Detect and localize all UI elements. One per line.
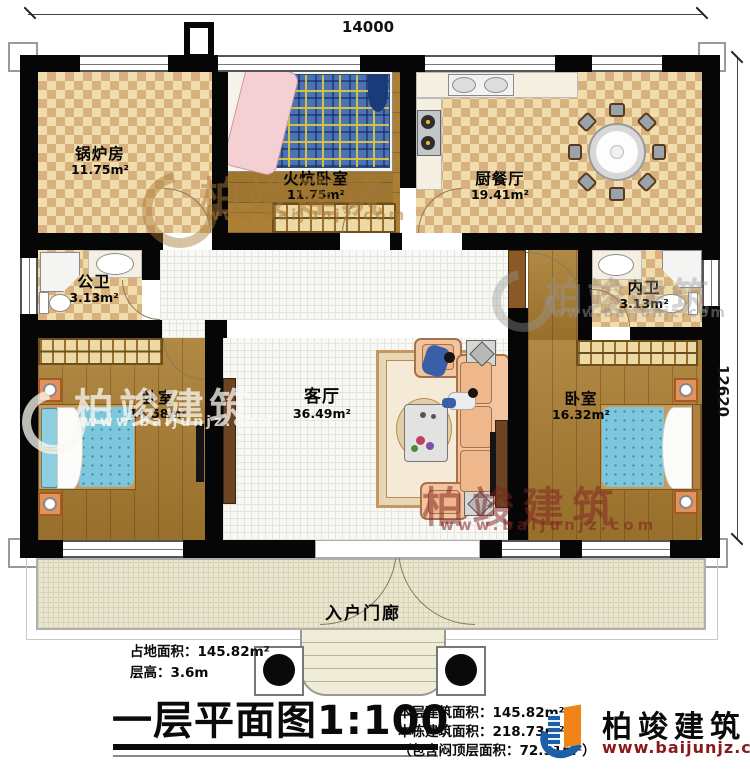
tv-living [490,432,496,496]
wall [462,233,702,250]
kang-bed-fold [368,74,388,112]
wall [578,250,592,327]
tv-cabinet [495,420,508,508]
toilet-tank [39,292,49,314]
wall [508,308,528,540]
nightstand-lamp [43,383,57,397]
wall [20,55,80,72]
room-area: 19.41m² [450,188,550,202]
dining-chair [652,144,666,160]
person-head [444,352,455,363]
stove-burner-dot [426,141,430,145]
bed-headboard [692,404,701,490]
bedroom-left-wardrobe [38,338,163,365]
plan-title-text: 一层平面图 [112,698,317,744]
bed-blanket [662,407,692,489]
dining-table-center [610,145,624,159]
brand-logo-icon [540,700,596,762]
window [20,258,38,314]
wall [630,327,702,340]
dimension-tick [24,7,37,20]
wall [20,72,38,258]
room-area: 16.32m² [533,408,629,422]
nightstand-lamp [679,495,693,509]
person-head [468,388,478,398]
room-area: 14.58m² [110,407,206,421]
room-name: 公卫 [56,274,132,291]
wall [662,55,720,72]
room-label-private-bath: 内卫 3.13m² [603,280,685,311]
wall [228,233,340,250]
dining-chair [609,103,625,117]
room-area: 11.75m² [256,188,376,202]
nightstand-lamp [679,383,693,397]
sofa-cushion [460,406,492,448]
bed-blanket [57,407,83,489]
dimension-width: 14000 [330,18,406,36]
wall [20,540,63,558]
room-name: 入户门廊 [318,605,408,624]
wall [183,540,315,558]
room-name: 卧室 [110,390,206,407]
wall [555,55,592,72]
room-name: 火炕卧室 [256,171,376,188]
room-name: 厨餐厅 [450,171,550,188]
entry-steps [300,630,446,696]
wall [560,540,582,558]
wall [142,250,160,280]
dimension-line-top [28,14,704,15]
floor-height: 层高：3.6m [130,663,270,684]
bed-pillow [41,408,58,448]
armchair-cushion [428,490,460,514]
living-room-floor [162,320,205,338]
wall [20,320,162,338]
coffee-table-flowers [426,442,434,450]
window [582,540,670,558]
room-name: 内卫 [603,280,685,297]
dimension-tick [696,7,709,20]
room-area: 3.13m² [56,291,132,305]
room-area: 11.75m² [52,163,148,177]
wall [20,314,38,540]
logo-tower-blue [548,714,560,746]
coffee-table-cup [431,414,436,419]
sink-basin [452,77,476,93]
wall [390,233,402,250]
bed-pillow [41,450,58,488]
toilet-tank [688,292,698,315]
person-legs [442,398,456,408]
window [425,55,555,72]
wall [702,72,720,260]
room-name: 锅炉房 [52,146,148,163]
room-label-public-bath: 公卫 3.13m² [56,274,132,305]
room-label-kang-bedroom: 火炕卧室 11.75m² [256,171,376,202]
coffee-table-cup [420,412,426,418]
dining-chair [609,187,625,201]
title-underline-thick [113,744,438,750]
room-label-living: 客厅 36.49m² [272,388,372,421]
window [218,55,360,72]
sofa-cushion [460,450,492,492]
wall [205,338,223,540]
info-left: 占地面积：145.82m² 层高：3.6m [130,642,270,684]
logo-tower-orange [564,705,581,748]
bedroom-right-door-leaf [508,250,526,310]
floor-plan-page: 锅炉房 11.75m² 火炕卧室 11.75m² 厨餐厅 19.41m² 公卫 … [0,0,750,773]
coffee-table [404,404,448,462]
tv-cabinet [223,378,236,504]
wall [578,327,592,340]
land-area: 占地面积：145.82m² [130,642,270,663]
bedroom-right-wardrobe [576,340,698,366]
logo-swoosh [534,712,589,765]
living-room-floor [160,250,508,320]
entry-door-opening [315,540,480,558]
room-name: 客厅 [272,388,372,407]
wall [168,55,218,72]
wall [400,72,416,188]
coffee-table-flowers [411,445,418,452]
column-core [445,654,477,686]
dimension-line-right [737,58,738,540]
wall [212,72,228,250]
wall [360,55,425,72]
room-label-boiler: 锅炉房 11.75m² [52,146,148,177]
dimension-height: 12620 [714,363,732,419]
room-label-bedroom-right: 卧室 16.32m² [533,391,629,422]
window [80,55,168,72]
title-underline-thin [113,755,438,757]
room-label-bedroom-left: 卧室 14.58m² [110,390,206,421]
brand-url: www.baijunjz.com [602,738,750,757]
room-name: 卧室 [533,391,629,408]
wall [205,320,227,338]
bathroom-sink [96,253,134,275]
nightstand-lamp [43,497,57,511]
coffee-table-flowers [416,436,425,445]
room-area: 36.49m² [272,407,372,421]
room-area: 3.13m² [603,297,685,311]
room-label-kitchen: 厨餐厅 19.41m² [450,171,550,202]
room-label-porch: 入户门廊 [318,605,408,624]
sink-basin [484,77,508,93]
tv-bedroom-left [196,424,204,482]
window [502,540,560,558]
wall [702,306,720,540]
wall [480,540,502,558]
dining-chair [568,144,582,160]
stove-burner-dot [426,120,430,124]
window [63,540,183,558]
wall [20,233,163,250]
bathroom-sink [598,254,634,276]
window [592,55,662,72]
window [702,260,720,306]
wall [670,540,720,558]
